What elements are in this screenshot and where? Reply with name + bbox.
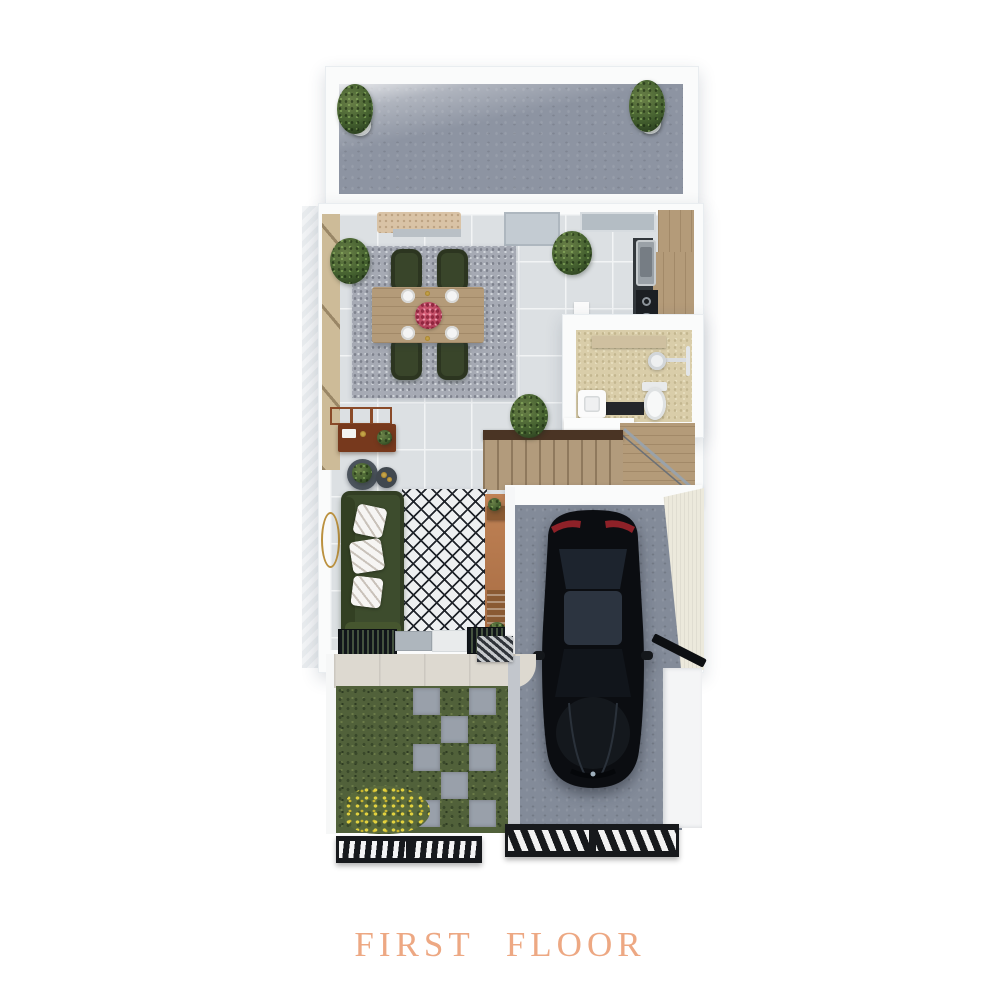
kitchen-window	[580, 212, 656, 232]
stove-burner	[642, 297, 651, 306]
floor-title: FIRST FLOOR	[0, 925, 1000, 965]
living-rug	[402, 489, 487, 647]
stone	[441, 716, 468, 743]
wall-mirror-gold	[321, 512, 340, 568]
car	[533, 503, 653, 795]
kitchen-plant	[552, 231, 592, 275]
tray-decor	[381, 472, 387, 478]
tray-decor	[387, 477, 392, 482]
kitchen-sink-basin	[640, 247, 652, 277]
gate-post	[589, 824, 596, 857]
sofa-pillow	[350, 575, 383, 608]
stone	[469, 744, 496, 771]
right-outer-wall	[663, 668, 702, 828]
sofa-pillow	[349, 538, 386, 575]
console-decor	[360, 431, 366, 437]
coffee-table-plant	[352, 463, 372, 483]
kitchen-upper-cabinet	[658, 210, 694, 254]
fence-post	[406, 836, 413, 863]
table-decor	[425, 291, 430, 296]
shower-head	[648, 352, 666, 370]
console-plant	[377, 430, 392, 445]
table-decor	[425, 336, 430, 341]
stone	[469, 800, 496, 827]
driveway-gate	[505, 824, 679, 857]
stone	[469, 688, 496, 715]
stair-rail-top	[483, 430, 623, 440]
stair-handrail	[620, 423, 695, 490]
bath-mat	[604, 402, 644, 415]
sofa-pillow	[352, 503, 388, 539]
stone	[413, 688, 440, 715]
yard-fence	[336, 836, 482, 863]
stone	[441, 772, 468, 799]
stone	[413, 744, 440, 771]
bathroom-towel-rail	[592, 336, 666, 348]
wall-rack	[330, 407, 392, 425]
place-setting	[401, 289, 415, 303]
place-setting	[445, 289, 459, 303]
exterior-texture-strip	[302, 206, 318, 668]
stair-treads	[483, 440, 623, 490]
doormat	[477, 636, 513, 662]
entry-cabinet	[487, 590, 506, 624]
front-window-left	[338, 629, 397, 655]
bathroom-sink-basin	[584, 396, 600, 412]
entry-shelf-plant	[488, 498, 501, 511]
patio-plant-left	[337, 84, 373, 134]
place-setting	[401, 326, 415, 340]
floorplan-render: FIRST FLOOR	[0, 0, 1000, 1000]
front-step	[432, 630, 467, 652]
place-setting	[445, 326, 459, 340]
toilet-bowl	[644, 388, 666, 420]
dining-plant	[330, 238, 370, 284]
patio-plant-right	[629, 80, 665, 132]
flower-centerpiece	[415, 302, 442, 329]
shower-bar	[686, 346, 690, 376]
front-panel	[395, 631, 432, 651]
back-door	[504, 212, 560, 246]
stair-plant	[510, 394, 548, 438]
driveway-curb-strip	[508, 656, 520, 828]
console-book	[342, 429, 356, 438]
flower-bush	[344, 786, 430, 834]
bench-shelf	[393, 229, 461, 237]
